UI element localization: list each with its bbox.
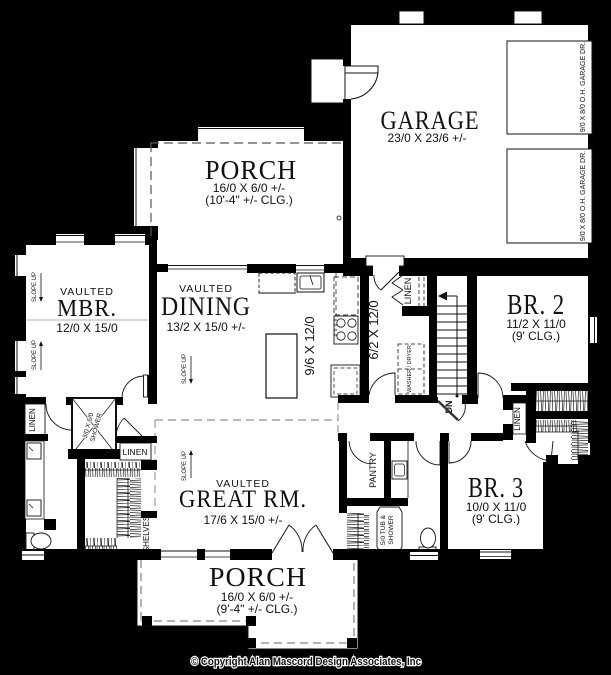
svg-text:(10'-4" +/- CLG.): (10'-4" +/- CLG.) xyxy=(205,193,293,207)
svg-text:23/0 X 23/6 +/-: 23/0 X 23/6 +/- xyxy=(387,131,466,145)
svg-text:GREAT RM.: GREAT RM. xyxy=(179,486,307,513)
svg-text:SHELVES: SHELVES xyxy=(142,516,151,552)
svg-text:SLOPE UP: SLOPE UP xyxy=(32,272,38,302)
svg-text:SLOPE UP: SLOPE UP xyxy=(182,451,188,481)
svg-text:17/6 X 15/0 +/-: 17/6 X 15/0 +/- xyxy=(203,513,282,527)
svg-text:5/0 TUB &: 5/0 TUB & xyxy=(380,514,387,545)
svg-text:PORCH: PORCH xyxy=(209,562,307,592)
svg-text:SHOWER: SHOWER xyxy=(388,515,395,545)
svg-text:9/6 X 12/0: 9/6 X 12/0 xyxy=(302,316,317,375)
svg-text:© Copyright Alan Mascord Desig: © Copyright Alan Mascord Design Associat… xyxy=(191,656,421,668)
svg-text:12/0 X 15/0: 12/0 X 15/0 xyxy=(56,321,118,335)
svg-text:13/2 X 15/0 +/-: 13/2 X 15/0 +/- xyxy=(166,320,245,334)
svg-text:LINEN: LINEN xyxy=(403,278,413,305)
svg-text:LINEN: LINEN xyxy=(513,407,522,431)
svg-text:9/0 X 8/0 O.H. GARAGE DR.: 9/0 X 8/0 O.H. GARAGE DR. xyxy=(580,42,587,132)
svg-text:(9' CLG.): (9' CLG.) xyxy=(472,512,520,526)
svg-text:6/2 X 12/0: 6/2 X 12/0 xyxy=(366,300,381,359)
svg-text:(9'-4" +/- CLG.): (9'-4" +/- CLG.) xyxy=(217,602,298,616)
svg-text:PANTRY: PANTRY xyxy=(368,452,378,488)
svg-text:MBR.: MBR. xyxy=(57,296,117,322)
svg-text:SLOPE UP: SLOPE UP xyxy=(32,340,38,370)
svg-text:LINEN: LINEN xyxy=(28,408,37,432)
svg-text:WASHER / DRYER: WASHER / DRYER xyxy=(407,345,413,393)
svg-text:(9' CLG.): (9' CLG.) xyxy=(512,329,560,343)
svg-text:9/0 X 8/0 O.H. GARAGE DR.: 9/0 X 8/0 O.H. GARAGE DR. xyxy=(580,151,587,241)
svg-text:LINEN: LINEN xyxy=(122,447,147,457)
svg-text:DINING: DINING xyxy=(161,292,251,321)
svg-text:SLOPE UP: SLOPE UP xyxy=(182,354,188,384)
